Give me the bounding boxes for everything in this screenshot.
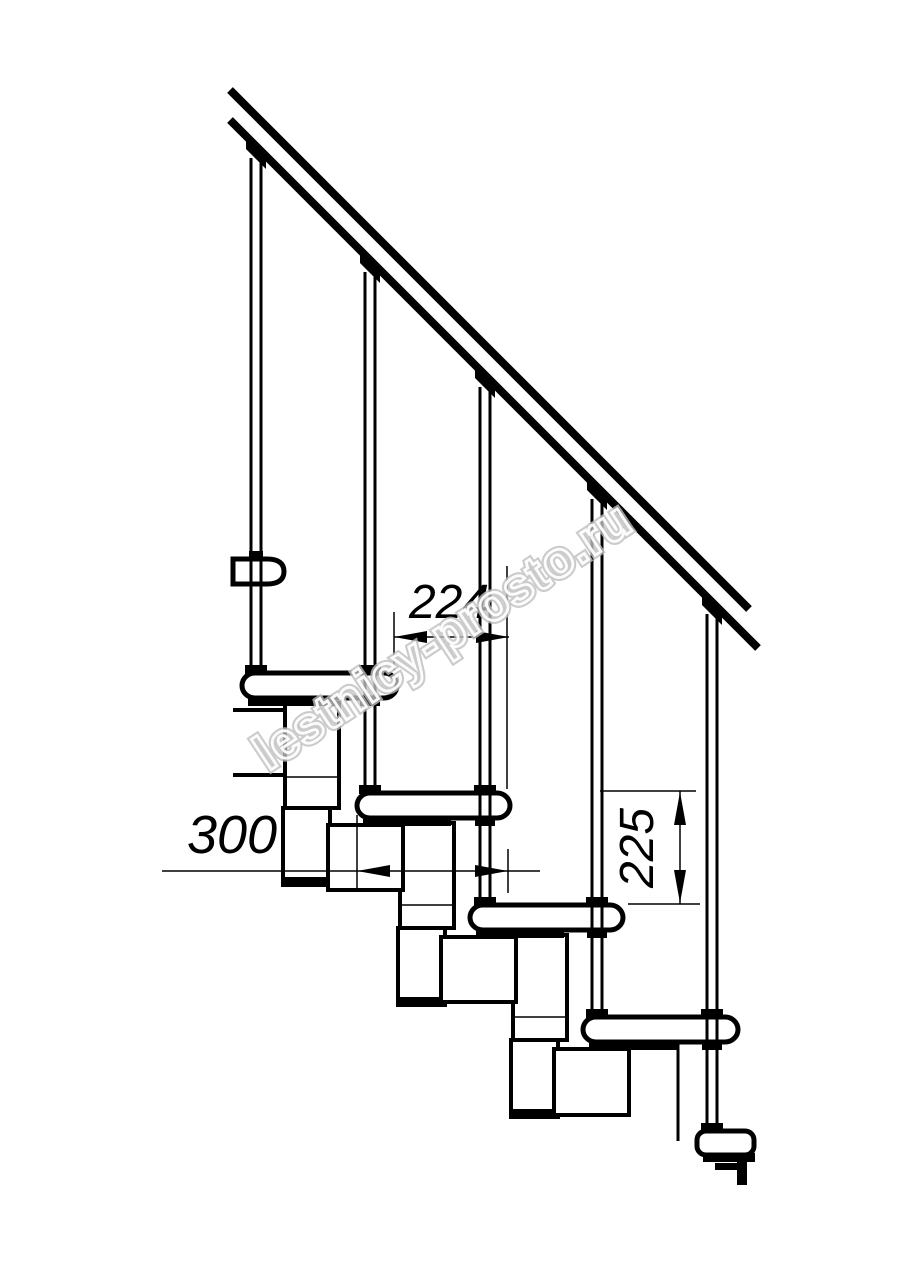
dim225-arrow-up	[674, 792, 686, 825]
module-extension-1	[283, 808, 330, 880]
module-extension-2	[398, 928, 445, 1000]
tread-2	[357, 793, 510, 818]
watermark: lestnicy-prosto.ru lestnicy-prosto.ru	[244, 491, 642, 781]
baluster-4-foot	[586, 1009, 608, 1018]
baluster-2-foot	[359, 785, 381, 794]
module-front-box-4	[554, 1049, 629, 1115]
dim225-arrow-down	[674, 870, 686, 903]
drawing-sheet: 224 300 225 lestnicy-prosto.ru lestnicy-…	[0, 0, 914, 1280]
nut-baluster-3	[475, 819, 495, 826]
baluster-5-foot	[701, 1123, 723, 1132]
baluster-1-foot	[245, 665, 267, 674]
tread-5-end-view	[697, 1131, 754, 1155]
handrail	[230, 90, 758, 648]
baluster-3	[474, 387, 496, 906]
baluster-5	[701, 614, 723, 1132]
plate-tread-4	[589, 1040, 677, 1050]
module-front-box-3	[441, 937, 516, 1002]
nut-baluster-5	[702, 1043, 722, 1050]
module-pad-1	[281, 877, 332, 887]
baluster-3-tread-connector	[474, 785, 496, 794]
lower-step-strip	[715, 1163, 738, 1170]
module-rear-box-2	[400, 823, 454, 928]
tread-4	[583, 1017, 738, 1042]
module-front-box-2	[328, 825, 403, 890]
baluster-1	[245, 158, 267, 674]
dimension-225: 225	[600, 791, 700, 904]
nut-baluster-4	[587, 931, 607, 938]
baluster-4-tread-connector	[586, 897, 608, 906]
baluster-1-collar	[249, 551, 263, 560]
lower-step-bar	[737, 1158, 747, 1185]
dim300-value: 300	[187, 805, 277, 865]
dim225-value: 225	[611, 808, 664, 889]
tread-3	[470, 905, 623, 930]
baluster-3-foot	[474, 897, 496, 906]
staircase-technical-drawing: 224 300 225 lestnicy-prosto.ru lestnicy-…	[0, 0, 914, 1280]
module-rear-box-3	[513, 935, 567, 1040]
plate-tread-2	[363, 816, 451, 826]
watermark-text: lestnicy-prosto.ru	[244, 491, 642, 781]
plate-tread-3	[476, 928, 564, 938]
module-extension-3	[511, 1040, 558, 1112]
plate-tread-5	[703, 1153, 755, 1162]
baluster-5-tread-connector	[701, 1009, 723, 1018]
baluster-4	[586, 499, 608, 1018]
tread-0-end-view	[233, 559, 284, 584]
